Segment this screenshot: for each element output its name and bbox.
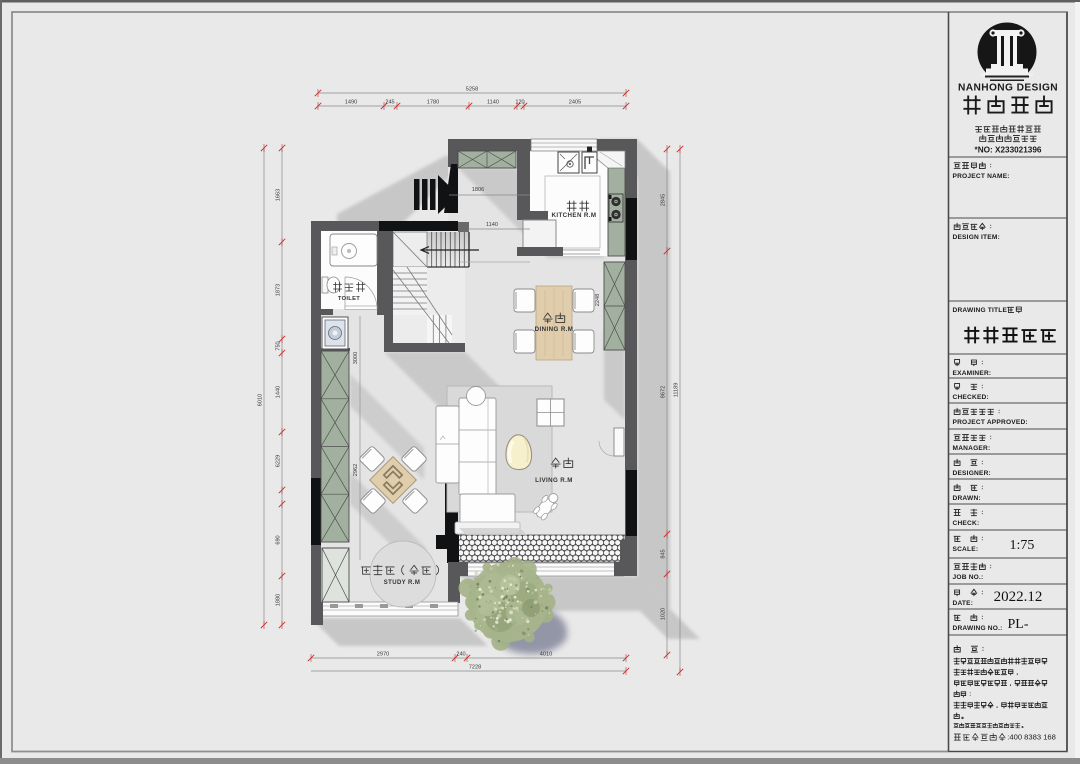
svg-text:DESIGN ITEM:: DESIGN ITEM: <box>953 234 1000 241</box>
svg-text:DRAWN:: DRAWN: <box>953 495 981 502</box>
svg-text:DESIGNER:: DESIGNER: <box>953 470 991 477</box>
svg-text:7228: 7228 <box>469 665 481 671</box>
svg-text:DRAWING NO.:: DRAWING NO.: <box>953 625 1003 632</box>
svg-text:1:75: 1:75 <box>1010 538 1035 553</box>
svg-text:1140: 1140 <box>486 222 498 228</box>
svg-text:CHECK:: CHECK: <box>953 520 980 527</box>
svg-text:750: 750 <box>276 341 282 350</box>
svg-text:DATE:: DATE: <box>953 600 974 607</box>
svg-text:11189: 11189 <box>674 383 680 398</box>
svg-text:8672: 8672 <box>661 386 667 398</box>
svg-text:2248: 2248 <box>595 294 601 306</box>
svg-text:845: 845 <box>661 549 667 558</box>
svg-text:1873: 1873 <box>276 284 282 296</box>
svg-text:4010: 4010 <box>540 652 552 658</box>
svg-text:1806: 1806 <box>472 187 484 193</box>
svg-text:245: 245 <box>385 100 394 106</box>
svg-text:PL-: PL- <box>1008 617 1029 632</box>
svg-text:6229: 6229 <box>276 455 282 467</box>
svg-text:CHECKED:: CHECKED: <box>953 394 989 401</box>
svg-text:PROJECT NAME:: PROJECT NAME: <box>953 173 1010 180</box>
svg-text:1490: 1490 <box>345 100 357 106</box>
svg-text:TOILET: TOILET <box>338 296 360 302</box>
svg-text:690: 690 <box>276 535 282 544</box>
svg-text:2970: 2970 <box>377 652 389 658</box>
svg-text:1780: 1780 <box>427 100 439 106</box>
svg-text:3000: 3000 <box>353 352 359 364</box>
svg-text:2022.12: 2022.12 <box>994 589 1043 605</box>
svg-text:1880: 1880 <box>276 594 282 606</box>
svg-text:120: 120 <box>515 100 524 106</box>
svg-text:2845: 2845 <box>661 194 667 206</box>
svg-text:LIVING R.M: LIVING R.M <box>535 477 573 484</box>
svg-text:PROJECT APPROVED:: PROJECT APPROVED: <box>953 419 1028 426</box>
svg-text:6010: 6010 <box>258 394 264 406</box>
svg-text:KITCHEN R.M: KITCHEN R.M <box>552 212 597 219</box>
svg-text:1140: 1140 <box>487 100 499 106</box>
svg-text:EXAMINER:: EXAMINER: <box>953 370 992 377</box>
svg-text:MANAGER:: MANAGER: <box>953 445 991 452</box>
svg-text:240: 240 <box>456 652 465 658</box>
svg-text:2405: 2405 <box>569 100 581 106</box>
svg-text:DINING R.M: DINING R.M <box>535 326 574 333</box>
svg-text:SCALE:: SCALE: <box>953 546 979 553</box>
svg-text::400 8383 168: :400 8383 168 <box>1007 733 1056 742</box>
svg-text:JOB NO.:: JOB NO.: <box>953 574 984 581</box>
svg-text:NANHONG DESIGN: NANHONG DESIGN <box>958 83 1058 94</box>
svg-text:5258: 5258 <box>466 87 478 93</box>
svg-text:STUDY R.M: STUDY R.M <box>384 580 421 586</box>
svg-text:DRAWING TITLE: DRAWING TITLE <box>953 307 1008 314</box>
svg-text:*NO: X233021396: *NO: X233021396 <box>975 146 1042 155</box>
svg-text:1440: 1440 <box>276 386 282 398</box>
svg-text:2962: 2962 <box>353 464 359 476</box>
svg-text:1663: 1663 <box>276 189 282 201</box>
svg-text:1020: 1020 <box>661 608 667 620</box>
